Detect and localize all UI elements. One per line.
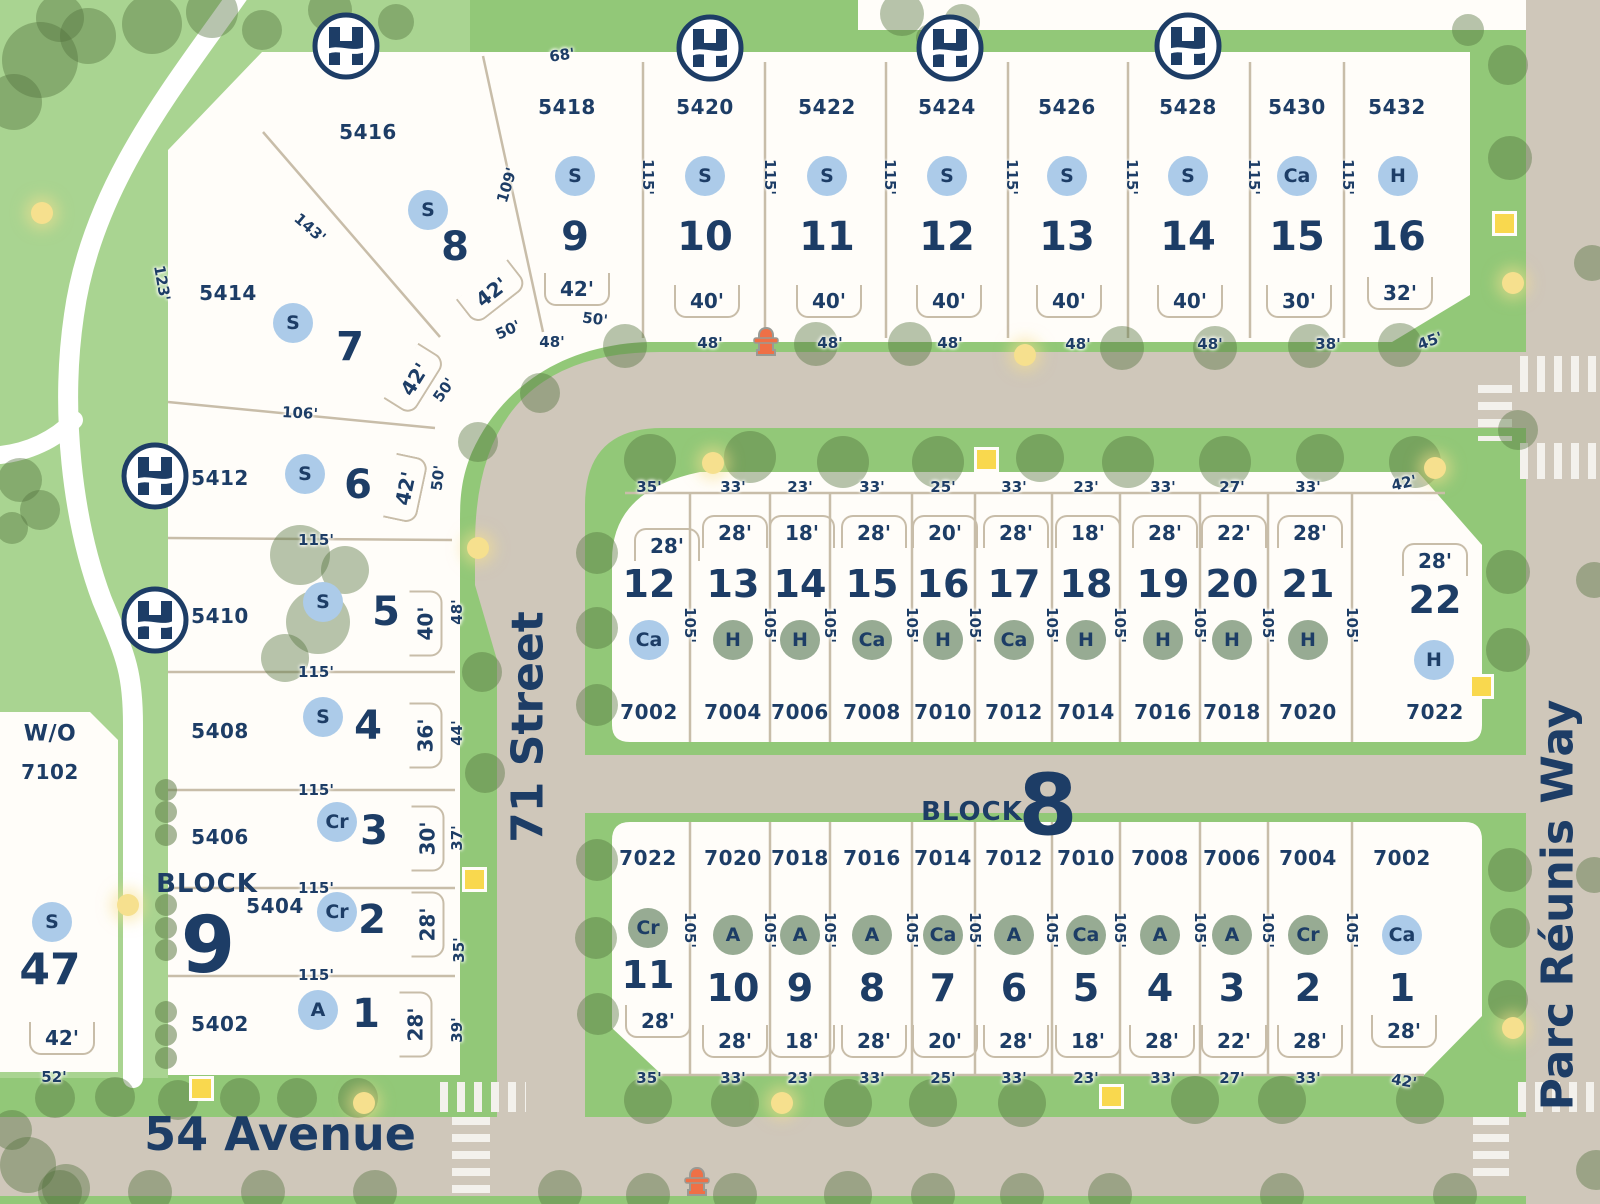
lot-address: 7018 — [771, 846, 829, 870]
dim-label: 23' — [1073, 478, 1098, 496]
lot-width-dim: 28' — [841, 515, 907, 548]
street-name-54-avenue: 54 Avenue — [144, 1107, 416, 1161]
lot-width-dim: 18' — [1055, 515, 1121, 548]
lot-width-dim: 30' — [1266, 285, 1332, 318]
dim-label: 115' — [298, 531, 334, 549]
lot-width-dim: 28' — [702, 515, 768, 548]
lot-address: 5428 — [1159, 95, 1217, 119]
dim-label: 48' — [937, 334, 962, 352]
dim-label: 23' — [787, 1069, 812, 1087]
lot-type-badge: S — [273, 303, 313, 343]
lot-width-dim: 30' — [412, 806, 445, 872]
lot-address: 5414 — [199, 281, 257, 305]
lot-width-dim: 22' — [1201, 515, 1267, 548]
lot-number: 7 — [336, 324, 364, 370]
tree-icon — [724, 431, 776, 483]
lot-width-dim: 28' — [412, 892, 445, 958]
tree-icon — [378, 4, 414, 40]
lot-address: 7012 — [985, 700, 1043, 724]
tree-icon — [1488, 980, 1528, 1020]
utility-box-icon — [1099, 1084, 1124, 1109]
street-light-icon — [1502, 272, 1524, 294]
lot-number: 6 — [1001, 966, 1027, 1010]
dim-label: 105' — [761, 912, 779, 948]
dim-label: 115' — [761, 159, 779, 195]
tree-icon — [1102, 436, 1154, 488]
dim-label: 33' — [1150, 1069, 1175, 1087]
lot-address: 7020 — [1279, 700, 1337, 724]
lot-type-badge: A — [780, 915, 820, 955]
dim-label: 39' — [448, 1017, 466, 1042]
lot-number: 10 — [707, 966, 760, 1010]
lot-width-dim: 40' — [1036, 285, 1102, 318]
lot-number: 9 — [787, 966, 813, 1010]
lot-width-dim: 28' — [841, 1025, 907, 1058]
lot-address: 5410 — [191, 604, 249, 628]
builder-logo-icon[interactable] — [121, 442, 189, 514]
lot-width-dim: 28' — [625, 1005, 691, 1038]
lot-type-badge: Ca — [923, 915, 963, 955]
lot-type-badge: S — [285, 454, 325, 494]
crosswalk — [1520, 356, 1600, 392]
lot-width-dim: 42' — [544, 273, 610, 306]
utility-box-icon — [462, 867, 487, 892]
tree-icon — [42, 1164, 90, 1204]
lot-type-badge: S — [807, 156, 847, 196]
walkout-label: W/O — [24, 722, 77, 747]
crosswalk — [1520, 443, 1600, 479]
dim-label: 33' — [1001, 1069, 1026, 1087]
lot-width-dim: 28' — [634, 528, 700, 561]
dim-label: 105' — [821, 912, 839, 948]
lot-type-badge: A — [852, 915, 892, 955]
dim-label: 105' — [1259, 912, 1277, 948]
tree-icon — [95, 1077, 135, 1117]
lot-number: 47 — [19, 945, 80, 996]
lot-type-badge: S — [32, 902, 72, 942]
dim-label: 23' — [787, 478, 812, 496]
lot-address: 5426 — [1038, 95, 1096, 119]
lot-width-dim: 40' — [1157, 285, 1223, 318]
dim-label: 105' — [1191, 912, 1209, 948]
dim-label: 105' — [1043, 912, 1061, 948]
lot-number: 1 — [1389, 966, 1415, 1010]
lot-type-badge: Ca — [994, 620, 1034, 660]
dim-label: 52' — [41, 1068, 66, 1086]
dim-label: 68' — [548, 44, 576, 65]
lot-number: 14 — [774, 562, 827, 606]
lot-number: 4 — [354, 703, 382, 749]
lot-address: 5408 — [191, 719, 249, 743]
dim-label: 115' — [298, 663, 334, 681]
lot-type-badge: S — [303, 582, 343, 622]
lot-type-badge: H — [1212, 620, 1252, 660]
lot-address: 5432 — [1368, 95, 1426, 119]
dim-label: 115' — [639, 159, 657, 195]
dim-label: 35' — [450, 937, 468, 962]
dim-label: 105' — [761, 607, 779, 643]
lot-address: 7014 — [914, 846, 972, 870]
lot-address: 7006 — [771, 700, 829, 724]
street-light-icon — [1502, 1017, 1524, 1039]
lot-type-badge: S — [685, 156, 725, 196]
bush-icon — [155, 939, 177, 961]
lot-width-dim: 40' — [916, 285, 982, 318]
lot-address: 5416 — [339, 120, 397, 144]
dim-label: 105' — [681, 912, 699, 948]
lot-width-dim: 20' — [912, 515, 978, 548]
dim-label: 105' — [1111, 607, 1129, 643]
lot-address: 7014 — [1057, 700, 1115, 724]
dim-label: 115' — [298, 966, 334, 984]
lot-number: 16 — [1370, 214, 1426, 260]
lot-address: 5412 — [191, 466, 249, 490]
dim-label: 33' — [1150, 478, 1175, 496]
dim-label: 25' — [930, 478, 955, 496]
dim-label: 37' — [448, 825, 466, 850]
lot-number: 11 — [799, 214, 855, 260]
dim-label: 33' — [859, 478, 884, 496]
dim-label: 23' — [1073, 1069, 1098, 1087]
dim-label: 50' — [581, 309, 608, 330]
lot-type-badge: A — [1140, 915, 1180, 955]
street-light-icon — [1014, 344, 1036, 366]
dim-label: 27' — [1219, 1069, 1244, 1087]
lot-width-dim: 28' — [702, 1025, 768, 1058]
lot-type-badge: Ca — [852, 620, 892, 660]
tree-icon — [576, 607, 618, 649]
lot-number: 22 — [1409, 578, 1462, 622]
lot-width-dim: 18' — [769, 1025, 835, 1058]
lot-address: 7022 — [619, 846, 677, 870]
lot-type-badge: Cr — [628, 908, 668, 948]
bush-icon — [155, 1001, 177, 1023]
lot-type-badge: S — [303, 697, 343, 737]
lot-address: 7008 — [1131, 846, 1189, 870]
lot-width-dim: 40' — [674, 285, 740, 318]
lot-address: 7016 — [843, 846, 901, 870]
lot-width-dim: 28' — [1277, 515, 1343, 548]
lot-address: 7004 — [1279, 846, 1337, 870]
street-name-parc-r-unis-way: Parc Réunis Way — [1533, 700, 1584, 1111]
street-light-icon — [702, 452, 724, 474]
lot-width-dim: 40' — [410, 591, 443, 657]
lot-number: 14 — [1160, 214, 1216, 260]
tree-icon — [1486, 628, 1530, 672]
dim-label: 105' — [1111, 912, 1129, 948]
dim-label: 35' — [636, 1069, 661, 1087]
utility-box-icon — [1492, 211, 1517, 236]
lot-width-dim: 28' — [1132, 515, 1198, 548]
lot-type-badge: H — [713, 620, 753, 660]
lot-type-badge: H — [923, 620, 963, 660]
dim-label: 50' — [428, 464, 449, 491]
builder-logo-icon[interactable] — [916, 14, 984, 86]
fire-hydrant-icon — [684, 1166, 710, 1204]
dim-label: 105' — [903, 912, 921, 948]
dim-label: 115' — [881, 159, 899, 195]
lot-number: 21 — [1282, 562, 1335, 606]
lot-type-badge: Cr — [317, 802, 357, 842]
lot-width-dim: 28' — [983, 1025, 1049, 1058]
lot-type-badge: A — [994, 915, 1034, 955]
lot-number: 15 — [1269, 214, 1325, 260]
tree-icon — [462, 652, 502, 692]
tree-icon — [458, 422, 498, 462]
dim-label: 48' — [448, 599, 466, 624]
street-light-icon — [117, 894, 139, 916]
block-number-8: 8 — [1018, 757, 1077, 856]
dim-label: 105' — [1343, 607, 1361, 643]
tree-icon — [1016, 434, 1064, 482]
dim-label: 25' — [930, 1069, 955, 1087]
lot-width-dim: 36' — [410, 703, 443, 769]
lot-number: 20 — [1206, 562, 1259, 606]
subdivision-lot-map: 54 Avenue71 StreetParc Réunis WayBLOCK9B… — [0, 0, 1600, 1204]
lot-number: 17 — [988, 562, 1041, 606]
dim-label: 48' — [1197, 335, 1222, 353]
dim-label: 33' — [1001, 478, 1026, 496]
lot-address: 7002 — [1373, 846, 1431, 870]
tree-icon — [576, 839, 618, 881]
lot-number: 3 — [1219, 966, 1245, 1010]
tree-icon — [1488, 848, 1532, 892]
lot-width-dim: 40' — [796, 285, 862, 318]
lot-type-badge: S — [1047, 156, 1087, 196]
lot-type-badge: Ca — [1382, 915, 1422, 955]
dim-label: 33' — [1295, 478, 1320, 496]
lot-type-badge: S — [927, 156, 967, 196]
block-label: BLOCK — [921, 797, 1023, 827]
tree-icon — [575, 917, 617, 959]
utility-box-icon — [974, 447, 999, 472]
dim-label: 48' — [539, 333, 564, 351]
dim-label: 115' — [1003, 159, 1021, 195]
lot-number: 3 — [360, 808, 388, 854]
lot-type-badge: Cr — [317, 892, 357, 932]
builder-logo-icon[interactable] — [121, 586, 189, 658]
dim-label: 105' — [903, 607, 921, 643]
tree-icon — [1100, 326, 1144, 370]
lot-type-badge: A — [1212, 915, 1252, 955]
street-light-icon — [31, 202, 53, 224]
tree-icon — [242, 10, 282, 50]
tree-icon — [1171, 1076, 1219, 1124]
lot-number: 2 — [358, 897, 386, 943]
dim-label: 105' — [966, 607, 984, 643]
lot-width-dim: 28' — [983, 515, 1049, 548]
tree-icon — [577, 993, 619, 1035]
lot-number: 18 — [1060, 562, 1113, 606]
bush-icon — [155, 824, 177, 846]
dim-label: 115' — [298, 781, 334, 799]
lot-address: 5404 — [246, 894, 304, 918]
utility-box-icon — [189, 1076, 214, 1101]
dim-label: 105' — [821, 607, 839, 643]
bush-icon — [155, 1024, 177, 1046]
tree-icon — [1452, 14, 1484, 46]
lot-number: 5 — [372, 589, 400, 635]
lot-address: 7102 — [21, 760, 79, 784]
tree-icon — [1498, 410, 1538, 450]
tree-icon — [1296, 434, 1344, 482]
dim-label: 33' — [720, 1069, 745, 1087]
crosswalk — [1473, 1117, 1509, 1183]
lot-type-badge: A — [298, 990, 338, 1030]
lot-address: 7018 — [1203, 700, 1261, 724]
dim-label: 115' — [1339, 159, 1357, 195]
lot-number: 8 — [441, 224, 469, 270]
lot-number: 12 — [623, 562, 676, 606]
lot-type-badge: H — [780, 620, 820, 660]
lot-number: 5 — [1073, 966, 1099, 1010]
lot-address: 5402 — [191, 1012, 249, 1036]
tree-icon — [520, 373, 560, 413]
dim-label: 115' — [1245, 159, 1263, 195]
lot-address: 5406 — [191, 825, 249, 849]
tree-icon — [465, 753, 505, 793]
dim-label: 27' — [1219, 478, 1244, 496]
lot-width-dim: 32' — [1367, 277, 1433, 310]
lot-type-badge: Ca — [629, 620, 669, 660]
dim-label: 48' — [817, 334, 842, 352]
tree-icon — [888, 322, 932, 366]
lot-address: 5418 — [538, 95, 596, 119]
lot-number: 4 — [1147, 966, 1173, 1010]
lot-width-dim: 28' — [1277, 1025, 1343, 1058]
lot-number: 9 — [561, 214, 589, 260]
builder-logo-icon[interactable] — [676, 14, 744, 86]
lot-address: 7012 — [985, 846, 1043, 870]
crosswalk — [440, 1082, 526, 1112]
dim-label: 48' — [1065, 335, 1090, 353]
bush-icon — [155, 801, 177, 823]
dim-label: 35' — [636, 478, 661, 496]
tree-icon — [1378, 323, 1422, 367]
dim-label: 106' — [282, 403, 319, 423]
lot-address: 5424 — [918, 95, 976, 119]
lot-address: 7008 — [843, 700, 901, 724]
crosswalk — [452, 1117, 490, 1201]
lot-number: 16 — [917, 562, 970, 606]
tree-icon — [576, 532, 618, 574]
block-label: BLOCK — [156, 869, 258, 899]
street-name-71-street: 71 Street — [503, 611, 554, 843]
tree-icon — [576, 684, 618, 726]
lot-address: 5422 — [798, 95, 856, 119]
lot-type-badge: Ca — [1277, 156, 1317, 196]
lot-number: 13 — [1039, 214, 1095, 260]
lot-number: 6 — [344, 462, 372, 508]
lot-type-badge: S — [1168, 156, 1208, 196]
lot-number: 1 — [352, 991, 380, 1037]
dim-label: 115' — [298, 879, 334, 897]
lot-width-dim: 22' — [1201, 1025, 1267, 1058]
tree-icon — [603, 324, 647, 368]
road-block8-lane — [585, 755, 1600, 813]
lot-type-badge: H — [1288, 620, 1328, 660]
lot-address: 7022 — [1406, 700, 1464, 724]
lot-number: 10 — [677, 214, 733, 260]
lot-width-dim: 18' — [769, 515, 835, 548]
lot-number: 15 — [846, 562, 899, 606]
lot-number: 19 — [1137, 562, 1190, 606]
lot-type-badge: A — [713, 915, 753, 955]
lot-number: 12 — [919, 214, 975, 260]
bush-icon — [155, 1047, 177, 1069]
lot-width-dim: 28' — [1402, 543, 1468, 576]
tree-icon — [1488, 45, 1528, 85]
lot-type-badge: H — [1066, 620, 1106, 660]
lot-width-dim: 18' — [1055, 1025, 1121, 1058]
dim-label: 48' — [697, 334, 722, 352]
lot-address: 7010 — [914, 700, 972, 724]
lot-number: 13 — [707, 562, 760, 606]
dim-label: 105' — [966, 912, 984, 948]
street-light-icon — [467, 537, 489, 559]
street-light-icon — [771, 1092, 793, 1114]
lot-width-dim: 28' — [1129, 1025, 1195, 1058]
bush-icon — [155, 917, 177, 939]
lot-number: 2 — [1295, 966, 1321, 1010]
lot-type-badge: H — [1378, 156, 1418, 196]
block-number-9: 9 — [181, 901, 235, 991]
dim-label: 105' — [1043, 607, 1061, 643]
lot-number: 11 — [622, 953, 675, 997]
lot-type-badge: Cr — [1288, 915, 1328, 955]
lot-type-badge: H — [1143, 620, 1183, 660]
lot-type-badge: H — [1414, 640, 1454, 680]
lot-number: 7 — [930, 966, 956, 1010]
lot-address: 5420 — [676, 95, 734, 119]
lot-type-badge: Ca — [1066, 915, 1106, 955]
dim-label: 105' — [1343, 912, 1361, 948]
dim-label: 38' — [1315, 335, 1340, 353]
builder-logo-icon[interactable] — [1154, 12, 1222, 84]
lot-address: 7006 — [1203, 846, 1261, 870]
bush-icon — [155, 779, 177, 801]
tree-icon — [1488, 136, 1532, 180]
dim-label: 105' — [681, 607, 699, 643]
dim-label: 105' — [1191, 607, 1209, 643]
lot-width-dim: 28' — [1371, 1015, 1437, 1048]
lot-address: 7020 — [704, 846, 762, 870]
lot-width-dim: 42' — [29, 1022, 95, 1055]
lot-address: 7004 — [704, 700, 762, 724]
dim-label: 115' — [1123, 159, 1141, 195]
builder-logo-icon[interactable] — [312, 12, 380, 84]
lot-type-badge: S — [555, 156, 595, 196]
dim-label: 33' — [859, 1069, 884, 1087]
lot-number: 8 — [859, 966, 885, 1010]
dim-label: 105' — [1259, 607, 1277, 643]
street-light-icon — [1424, 457, 1446, 479]
dim-label: 33' — [720, 478, 745, 496]
tree-icon — [1490, 908, 1530, 948]
dim-label: 33' — [1295, 1069, 1320, 1087]
lot-width-dim: 28' — [400, 992, 433, 1058]
fire-hydrant-icon — [753, 326, 779, 364]
lot-width-dim: 20' — [912, 1025, 978, 1058]
lot-address: 7002 — [620, 700, 678, 724]
lot-address: 7010 — [1057, 846, 1115, 870]
lot-address: 7016 — [1134, 700, 1192, 724]
lot-address: 5430 — [1268, 95, 1326, 119]
dim-label: 44' — [448, 720, 466, 745]
utility-box-icon — [1469, 674, 1494, 699]
tree-icon — [1486, 550, 1530, 594]
